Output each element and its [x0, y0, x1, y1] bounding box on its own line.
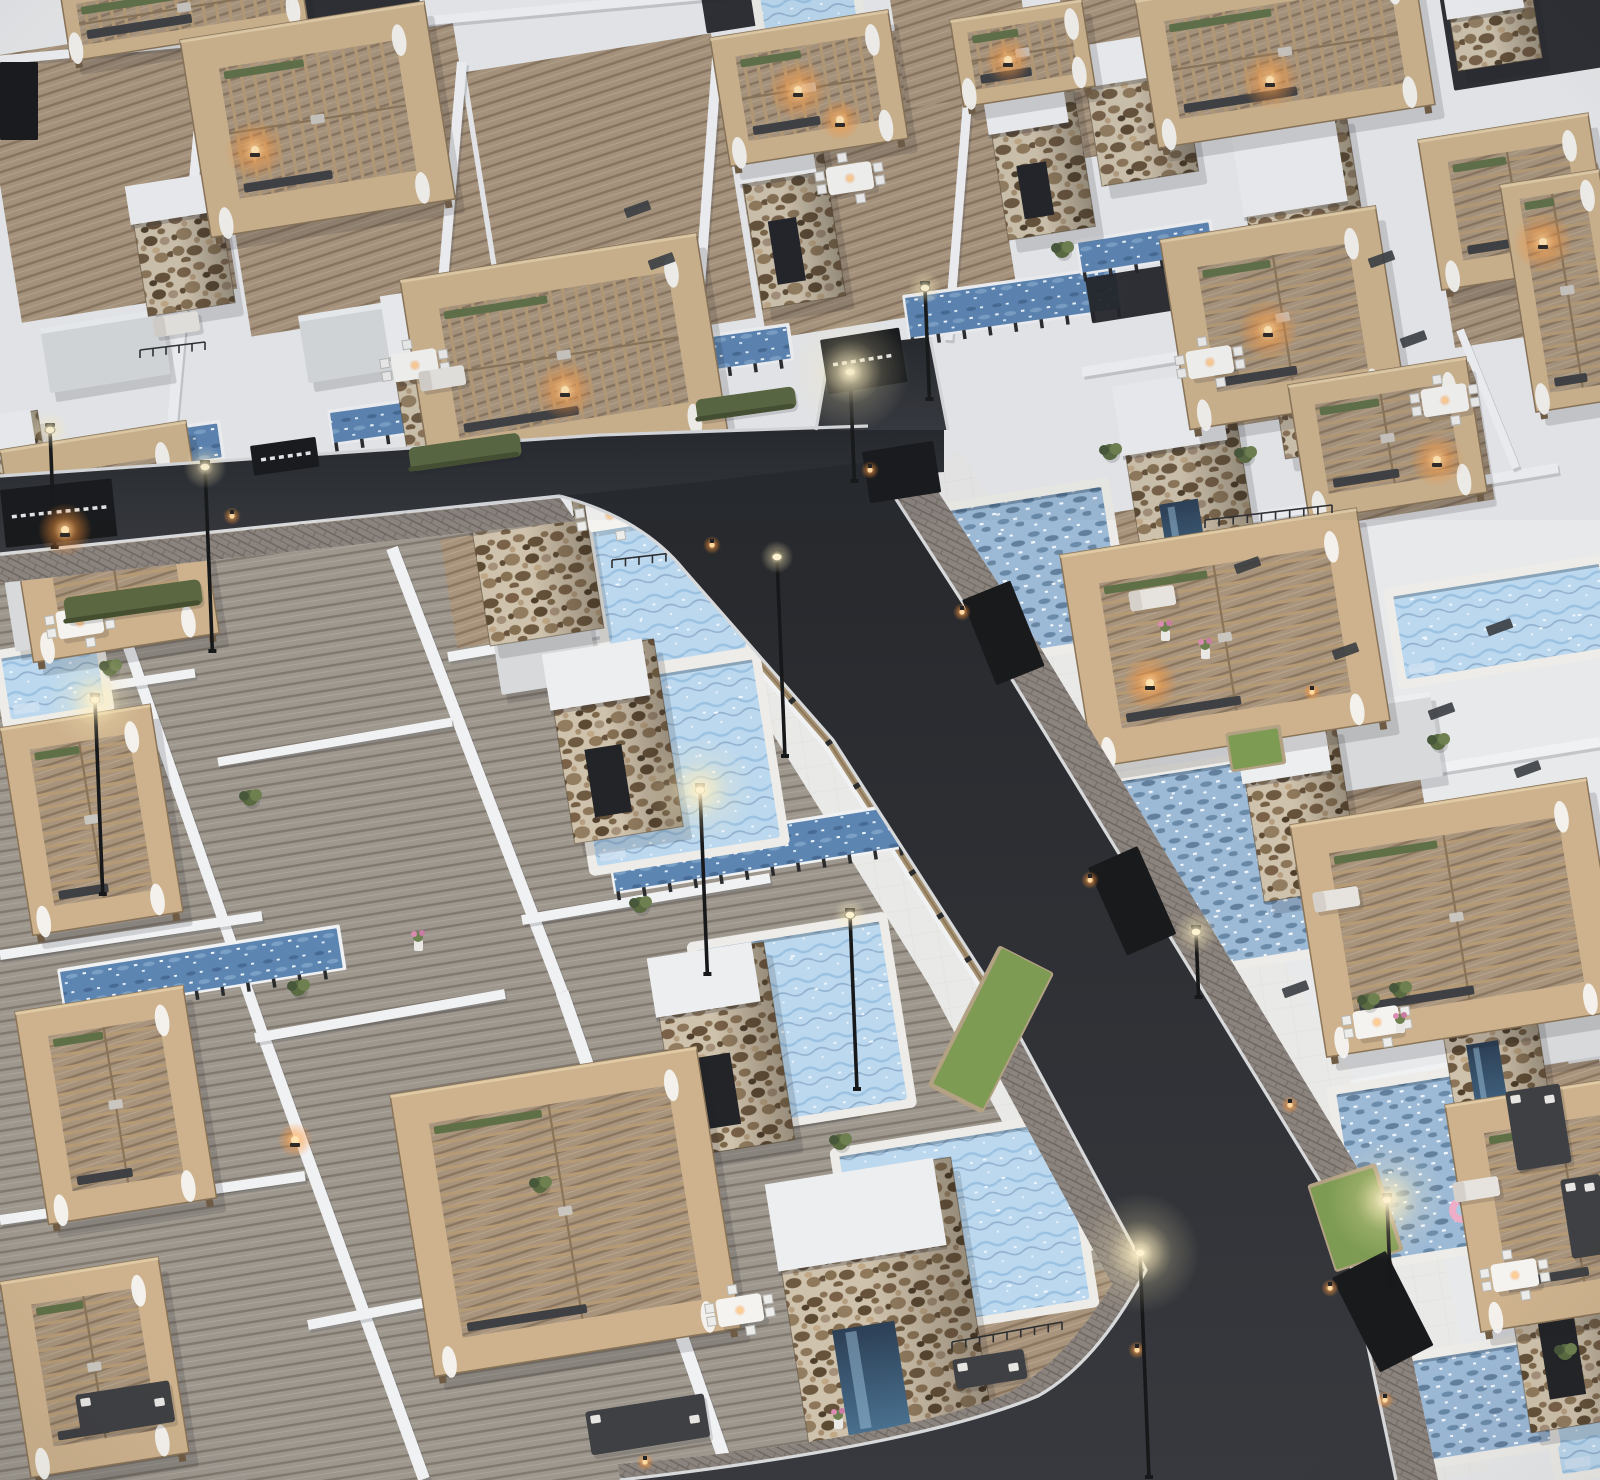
aerial-villa-render-stage: [0, 0, 1600, 1480]
aerial-villa-render: [0, 0, 1600, 1480]
